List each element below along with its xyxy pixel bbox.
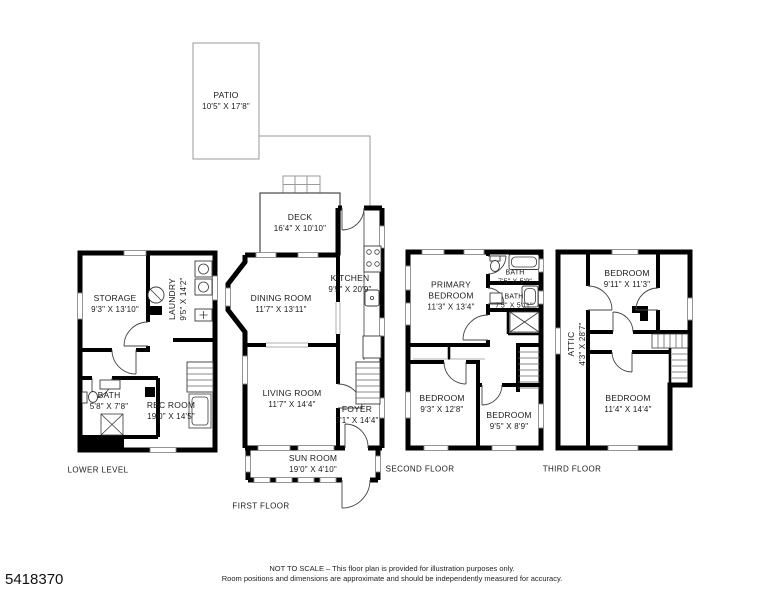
- deck-steps: [283, 176, 320, 193]
- room-label-bedroom-top: BEDROOM 9'11" X 11'3": [604, 268, 651, 290]
- room-label-bedroom-right: BEDROOM 9'5" X 8'9": [486, 410, 531, 432]
- floor-caption-lower-level: LOWER LEVEL: [68, 466, 129, 475]
- room-label-bath-1: BATH 7'5" X 5'9": [498, 270, 532, 287]
- disclaimer: NOT TO SCALE – This floor plan is provid…: [8, 564, 768, 584]
- room-name: SUN ROOM: [289, 453, 337, 463]
- room-name: KITCHEN: [331, 273, 370, 283]
- room-label-bath-2: BATH 7'5" X 5'11": [495, 294, 533, 311]
- chimney: [632, 306, 648, 321]
- room-label-foyer: FOYER 7'1" X 14'4": [335, 404, 378, 426]
- disclaimer-line-1: NOT TO SCALE – This floor plan is provid…: [269, 564, 514, 573]
- room-dims: 19'0" X 4'10": [289, 465, 337, 474]
- room-name: REC ROOM: [147, 400, 195, 410]
- room-label-storage: STORAGE 9'3" X 13'10": [91, 293, 139, 315]
- floor-caption-second-floor: SECOND FLOOR: [386, 465, 455, 474]
- room-label-deck: DECK 16'4" X 10'10": [274, 212, 326, 234]
- room-dims: 9'5" X 8'9": [490, 422, 529, 431]
- first-floor-windows: [226, 226, 385, 483]
- room-name: DECK: [288, 212, 312, 222]
- room-name: BATH: [505, 294, 524, 301]
- room-name: BATH: [506, 270, 525, 277]
- floor-caption-first-floor: FIRST FLOOR: [232, 502, 289, 511]
- dryer: [195, 279, 212, 295]
- third-floor-doors: [585, 286, 661, 372]
- room-label-laundry: LAUNDRY 9'5" X 14'2": [167, 277, 189, 320]
- lower-level-plan: [78, 251, 218, 453]
- room-name: BEDROOM: [604, 268, 649, 278]
- room-name: DINING ROOM: [251, 293, 312, 303]
- room-name: LAUNDRY: [167, 278, 177, 320]
- first-floor-walls: [228, 208, 382, 480]
- room-dims: 9'3" X 12'8": [420, 405, 463, 414]
- room-dims: 4'3" X 28'7": [578, 322, 587, 365]
- room-name: STORAGE: [94, 293, 137, 303]
- room-name: ATTIC: [566, 332, 576, 357]
- room-name: FOYER: [342, 404, 372, 414]
- room-dims: 19'0" X 14'5": [147, 412, 195, 421]
- room-name: BEDROOM: [419, 393, 464, 403]
- room-label-attic: ATTIC 4'3" X 28'7": [566, 322, 588, 365]
- room-dims: 9'5" X 14'2": [179, 277, 188, 320]
- room-dims: 9'11" X 11'3": [604, 280, 651, 289]
- footprint-outline: [259, 136, 370, 206]
- room-dims: 11'3" X 13'4": [427, 303, 474, 312]
- room-dims: 9'5" X 20'9": [328, 285, 371, 294]
- room-dims: 7'1" X 14'4": [335, 416, 378, 425]
- room-dims: 7'5" X 5'9": [498, 278, 532, 285]
- room-label-sun-room: SUN ROOM 19'0" X 4'10": [289, 453, 337, 475]
- room-dims: 5'8" X 7'8": [90, 402, 129, 411]
- room-name: BATH: [98, 390, 121, 400]
- washer: [195, 261, 212, 277]
- vanity-sink: [100, 380, 120, 389]
- second-floor-stairs: [518, 352, 540, 388]
- room-dims: 9'3" X 13'10": [91, 305, 139, 314]
- room-name: BEDROOM: [486, 410, 531, 420]
- foyer-stairs: [356, 362, 380, 404]
- second-floor-doors: [444, 256, 506, 405]
- room-label-lower-bath: BATH 5'8" X 7'8": [90, 390, 129, 412]
- floorplan-page: PATIO 10'5" X 17'8" DECK 16'4" X 10'10" …: [0, 0, 768, 594]
- room-dims: 11'7" X 13'11": [255, 305, 306, 314]
- room-label-dining-room: DINING ROOM 11'7" X 13'11": [251, 293, 312, 315]
- room-label-rec-room: REC ROOM 19'0" X 14'5": [147, 400, 195, 422]
- room-label-bedroom-left: BEDROOM 9'3" X 12'8": [419, 393, 464, 415]
- room-dims: 11'4" X 14'4": [604, 405, 651, 414]
- room-dims: 11'7" X 14'4": [268, 400, 315, 409]
- room-name: PRIMARY BEDROOM: [422, 280, 480, 302]
- room-label-kitchen: KITCHEN 9'5" X 20'9": [328, 273, 371, 295]
- refrigerator: [363, 336, 381, 358]
- disclaimer-line-2: Room positions and dimensions are approx…: [222, 574, 562, 583]
- room-name: LIVING ROOM: [263, 388, 322, 398]
- room-name: BEDROOM: [605, 393, 650, 403]
- room-dims: 7'5" X 5'11": [495, 302, 533, 309]
- room-dims: 16'4" X 10'10": [274, 224, 326, 233]
- room-dims: 10'5" X 17'8": [202, 102, 250, 111]
- support-post: [145, 387, 155, 397]
- room-name: PATIO: [213, 90, 238, 100]
- room-label-bedroom-bottom: BEDROOM 11'4" X 14'4": [604, 393, 651, 415]
- room-label-patio: PATIO 10'5" X 17'8": [202, 90, 250, 112]
- room-label-living-room: LIVING ROOM 11'7" X 14'4": [263, 388, 322, 410]
- room-label-primary-bedroom: PRIMARY BEDROOM 11'3" X 13'4": [422, 280, 480, 313]
- floor-caption-third-floor: THIRD FLOOR: [543, 465, 602, 474]
